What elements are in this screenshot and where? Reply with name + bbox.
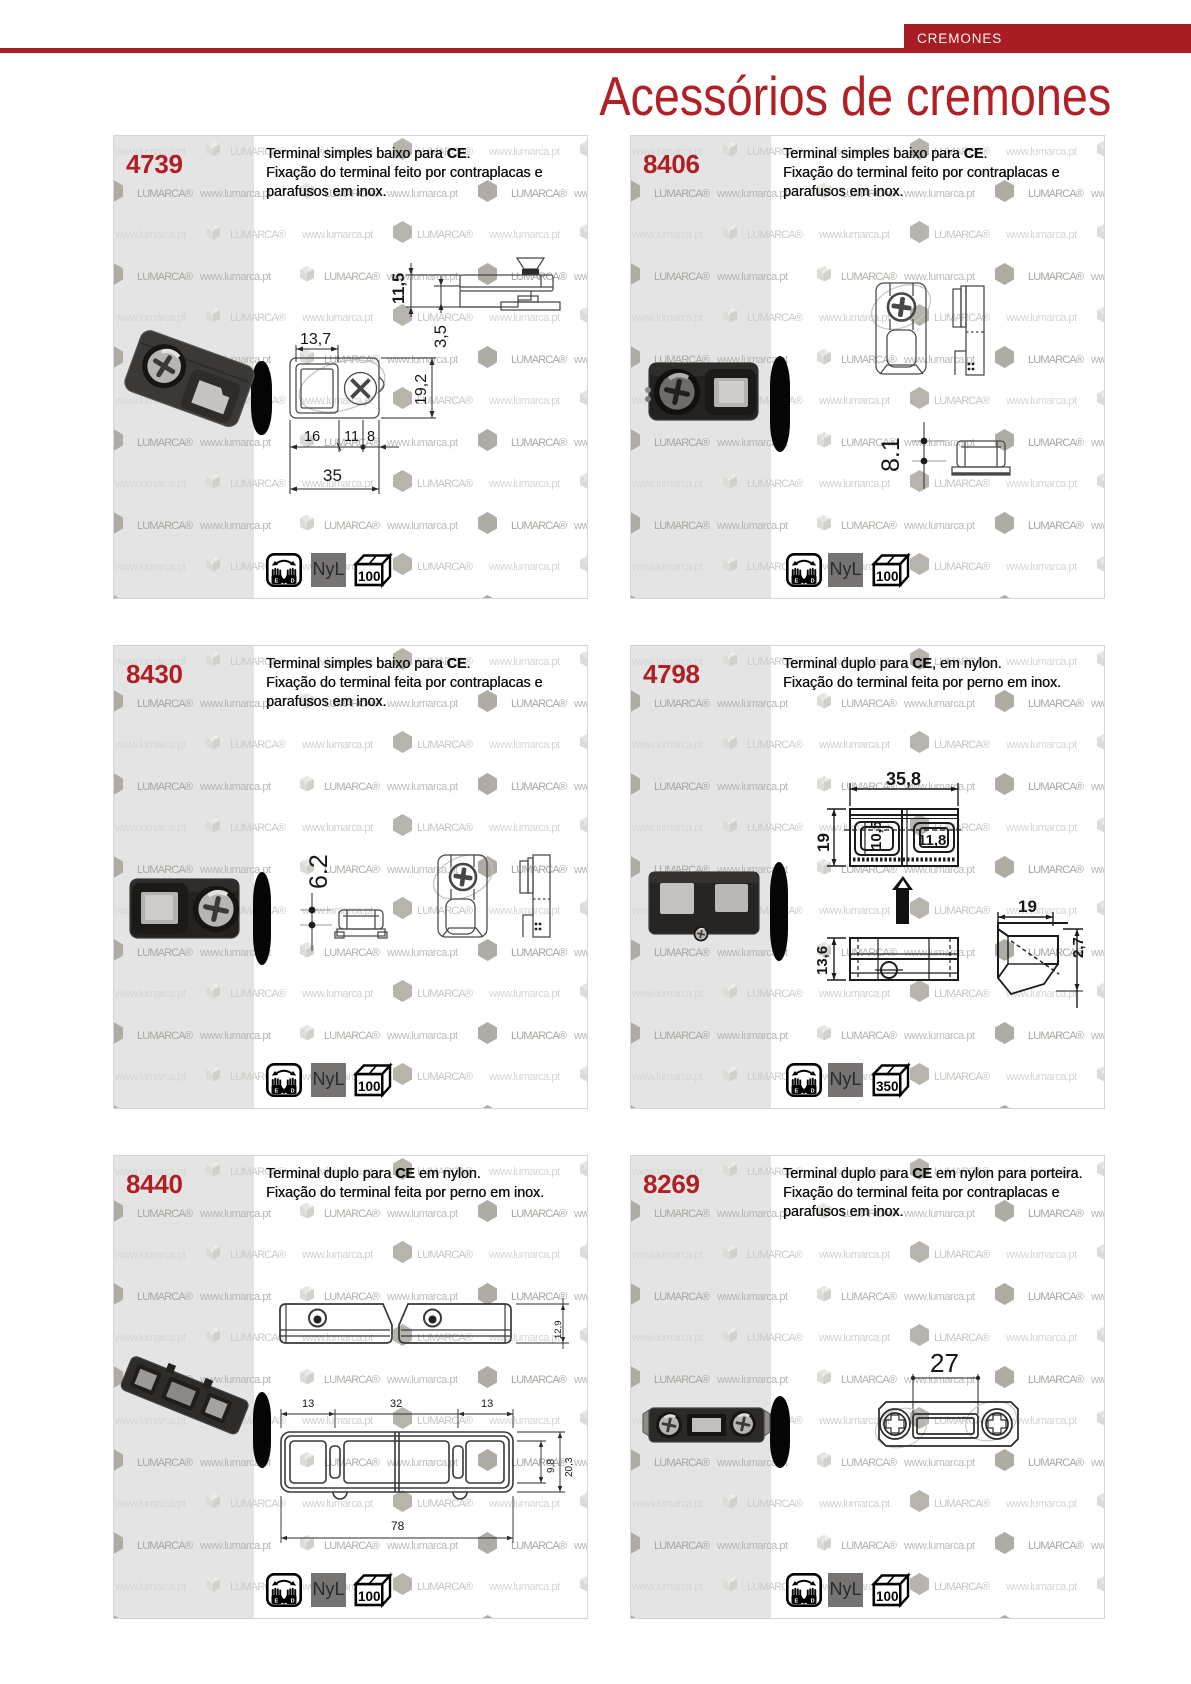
svg-text:6.2: 6.2 (305, 854, 333, 889)
svg-text:12,9: 12,9 (553, 1321, 564, 1340)
svg-text:11: 11 (344, 429, 359, 445)
svg-text:8.1: 8.1 (877, 437, 905, 472)
svg-text:78: 78 (391, 1519, 405, 1533)
svg-text:20,3: 20,3 (564, 1457, 575, 1477)
svg-text:100: 100 (876, 569, 899, 584)
svg-text:35,8: 35,8 (886, 769, 921, 789)
svg-text:19: 19 (814, 833, 833, 852)
svg-text:13,7: 13,7 (300, 331, 331, 348)
svg-text:100: 100 (876, 1589, 899, 1604)
svg-text:19,2: 19,2 (413, 374, 430, 405)
svg-text:2,7: 2,7 (1070, 937, 1087, 958)
svg-text:3,5: 3,5 (432, 325, 450, 348)
svg-text:32: 32 (390, 1398, 402, 1410)
svg-text:11,8: 11,8 (918, 832, 946, 849)
svg-text:100: 100 (358, 1589, 381, 1604)
svg-text:13,6: 13,6 (814, 946, 831, 975)
svg-text:13: 13 (481, 1398, 493, 1410)
svg-text:10,5: 10,5 (868, 821, 885, 850)
svg-text:19: 19 (1018, 897, 1037, 916)
svg-text:350: 350 (876, 1079, 899, 1094)
svg-text:13: 13 (302, 1398, 314, 1410)
svg-text:35: 35 (323, 466, 342, 485)
svg-text:100: 100 (358, 569, 381, 584)
svg-text:16: 16 (304, 429, 320, 445)
svg-text:27: 27 (930, 1348, 959, 1378)
svg-text:11,5: 11,5 (390, 273, 408, 304)
svg-text:100: 100 (358, 1079, 381, 1094)
svg-text:9,8: 9,8 (546, 1459, 557, 1473)
svg-text:8: 8 (367, 429, 375, 445)
